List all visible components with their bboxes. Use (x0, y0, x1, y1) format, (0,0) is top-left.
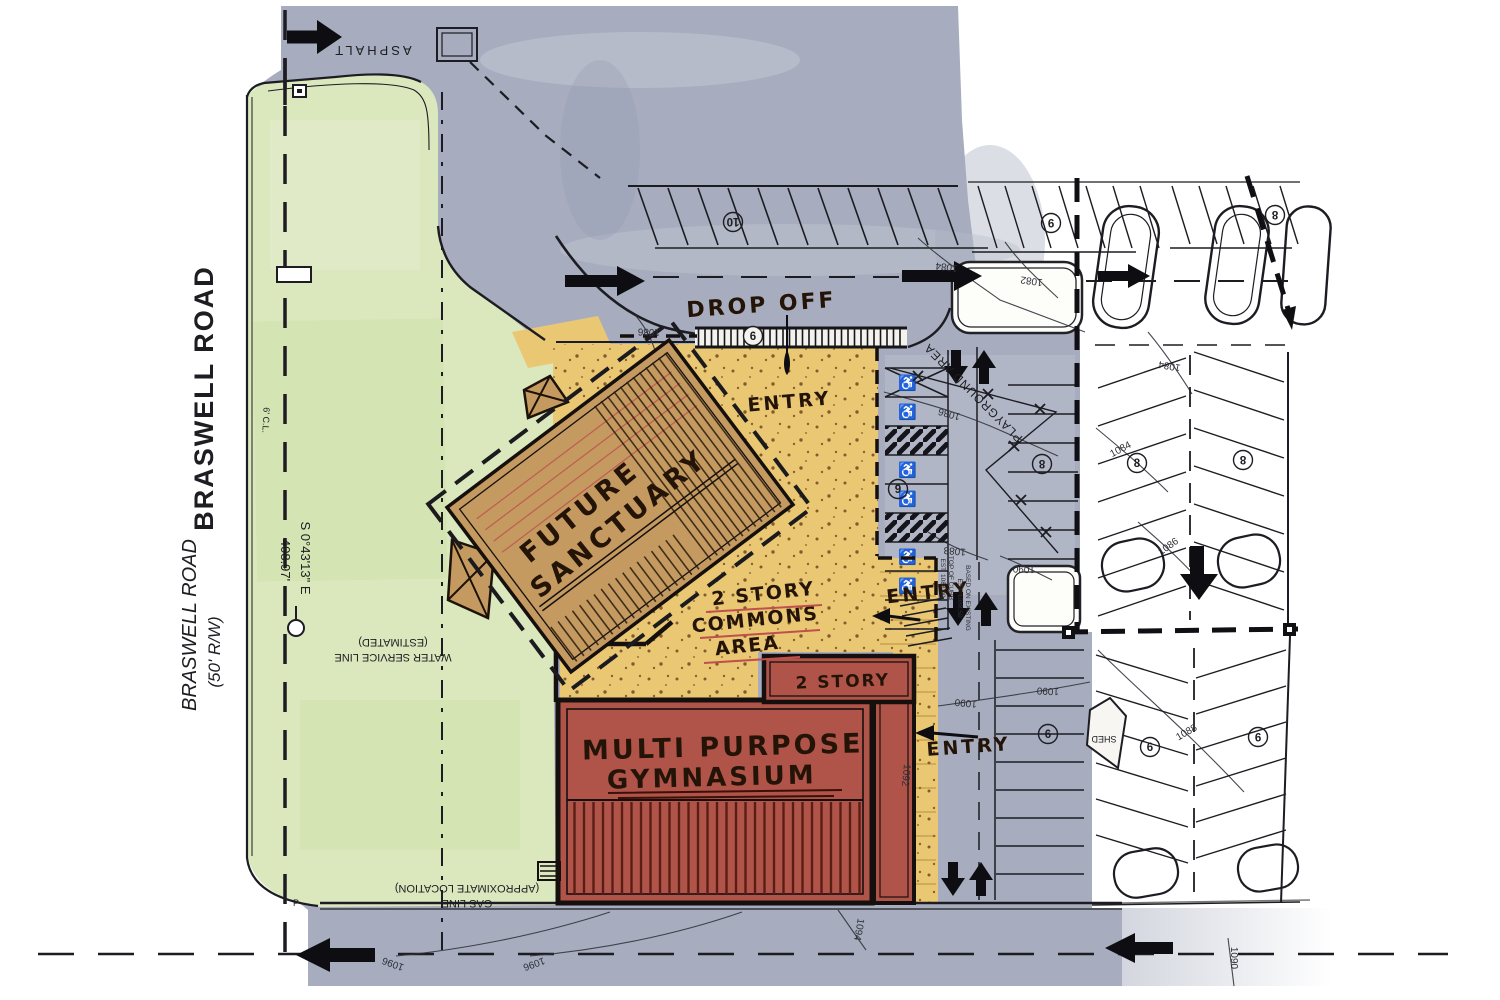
svg-text:WATER SERVICE LINE: WATER SERVICE LINE (334, 651, 451, 663)
contour-label: 1090 (1036, 685, 1059, 697)
road-name-label-italic: BRASWELL ROAD (179, 539, 201, 711)
pole-label: P (293, 898, 299, 908)
bearing-label: S 0°43'13" E (298, 521, 313, 594)
svg-text:8: 8 (1239, 453, 1246, 465)
svg-text:9: 9 (895, 484, 901, 496)
stall-count-badge: 8 (1234, 451, 1253, 470)
svg-text:(APPROXIMATE LOCATION): (APPROXIMATE LOCATION) (395, 882, 539, 894)
svg-text:8: 8 (1134, 458, 1141, 470)
shed-structure: SHED (1087, 698, 1126, 768)
stall-count-badge: 9 (1042, 214, 1061, 233)
svg-text:6: 6 (1147, 742, 1153, 754)
svg-text:6: 6 (750, 331, 756, 343)
svg-text:GAS LINE: GAS LINE (442, 897, 493, 909)
svg-text:(ESTIMATED): (ESTIMATED) (358, 636, 427, 648)
contour-label: 1090 (1228, 947, 1239, 970)
handicap-icon: ♿ (898, 403, 917, 421)
svg-text:EST. 1088.50: EST. 1088.50 (956, 578, 963, 617)
property-boundary (1062, 176, 1298, 639)
contour-label: 1092 (899, 764, 912, 788)
road-rw-label: (50' R/W) (205, 616, 224, 687)
contour-label: 1090 (1012, 563, 1035, 575)
svg-text:10: 10 (727, 215, 740, 227)
svg-text:BASED ON EXISTING: BASED ON EXISTING (964, 565, 971, 631)
distance-label: 408.97' (278, 539, 293, 581)
site-plan-drawing: ♿ ♿ ♿ ♿ ♿ ♿ (0, 0, 1500, 1000)
stall-count-badge: 6 (1141, 738, 1160, 757)
svg-text:8: 8 (1038, 457, 1045, 469)
contour-label: 1090 (954, 696, 978, 709)
svg-text:EST. 1088.00: EST. 1088.00 (939, 558, 946, 597)
handicap-icon: ♿ (898, 461, 917, 479)
svg-text:9: 9 (1048, 216, 1054, 228)
two-story-label: 2 STORY (795, 670, 890, 693)
handicap-icon: ♿ (898, 374, 917, 392)
stall-count-badge: 8 (1266, 206, 1285, 225)
stall-count-badge: 8 (1128, 454, 1147, 473)
svg-text:6: 6 (1045, 729, 1051, 741)
svg-text:8: 8 (1271, 208, 1278, 220)
stall-count-badge: 6 (744, 327, 763, 346)
contour-label: 1086 (637, 326, 660, 338)
cl-note-label: 6' C.L. (260, 407, 271, 433)
road-name-label-bold: BRASWELL ROAD (189, 265, 219, 531)
curb-note-a: TOP OF CURB EST. 1088.00 (939, 556, 954, 600)
shed-label: SHED (1091, 734, 1117, 744)
site-plan-page: ♿ ♿ ♿ ♿ ♿ ♿ (0, 0, 1500, 1000)
arrow-down-right-lot (1180, 546, 1218, 600)
asphalt-label: ASPHALT (332, 43, 411, 58)
stall-count-badge: 9 (1249, 728, 1268, 747)
svg-text:9: 9 (1255, 730, 1261, 742)
svg-text:TOP OF CURB: TOP OF CURB (947, 556, 954, 600)
drop-off-crosswalk (695, 328, 907, 347)
